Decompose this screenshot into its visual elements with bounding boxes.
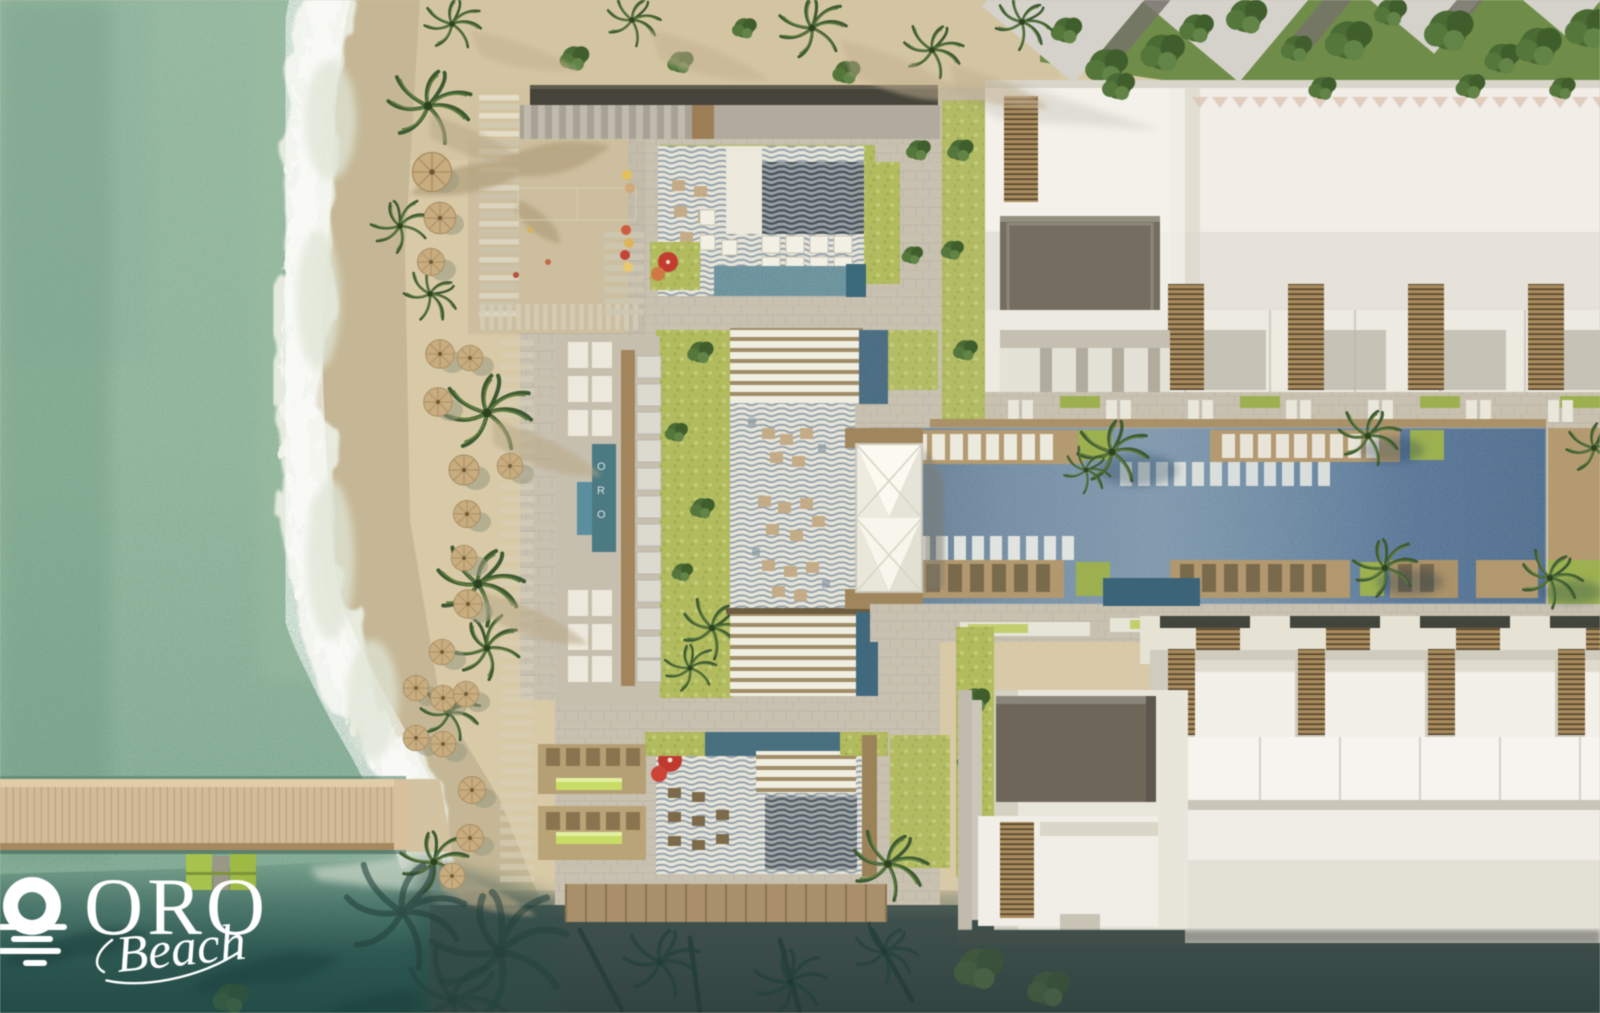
svg-text:O: O xyxy=(597,461,606,473)
svg-text:R: R xyxy=(597,485,605,497)
svg-text:O: O xyxy=(597,509,606,521)
